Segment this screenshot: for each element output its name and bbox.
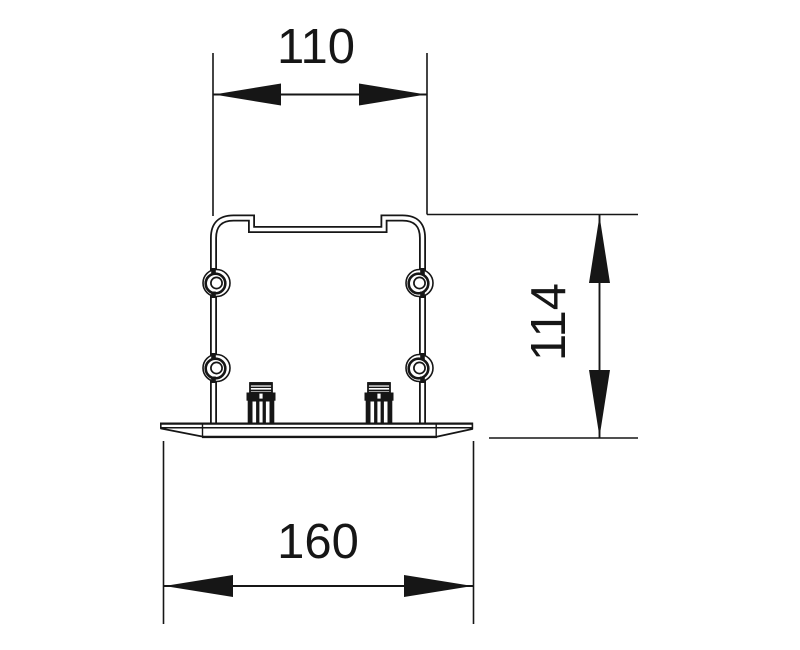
base-plate (160, 423, 473, 437)
dim-side-arrow-top (589, 216, 610, 283)
technical-drawing-canvas: 110 114 160 (0, 0, 800, 650)
base-plate-right-chamfer (436, 429, 473, 437)
dim-side-arrow-bottom (589, 370, 610, 437)
dim-top-width-label: 110 (277, 20, 355, 74)
base-terminals (247, 382, 394, 424)
screw-bosses (203, 268, 433, 383)
screw-boss-right-upper (406, 268, 433, 298)
dim-top-width: 110 (213, 20, 427, 216)
dim-bottom-arrow-left (165, 575, 234, 597)
terminal-left (247, 382, 276, 424)
screw-boss-left-lower (203, 353, 230, 383)
dim-side-height-label: 114 (522, 283, 576, 361)
terminal-right (365, 382, 394, 424)
dim-top-arrow-right (359, 84, 426, 106)
dim-bottom-arrow-right (404, 575, 473, 597)
dim-top-arrow-left (214, 84, 281, 106)
screw-boss-left-upper (203, 268, 230, 298)
dim-side-height: 114 (427, 215, 638, 439)
dim-bottom-width-label: 160 (277, 515, 359, 569)
screw-boss-right-lower (406, 353, 433, 383)
base-plate-left-chamfer (161, 428, 205, 437)
dim-bottom-width: 160 (164, 441, 474, 624)
